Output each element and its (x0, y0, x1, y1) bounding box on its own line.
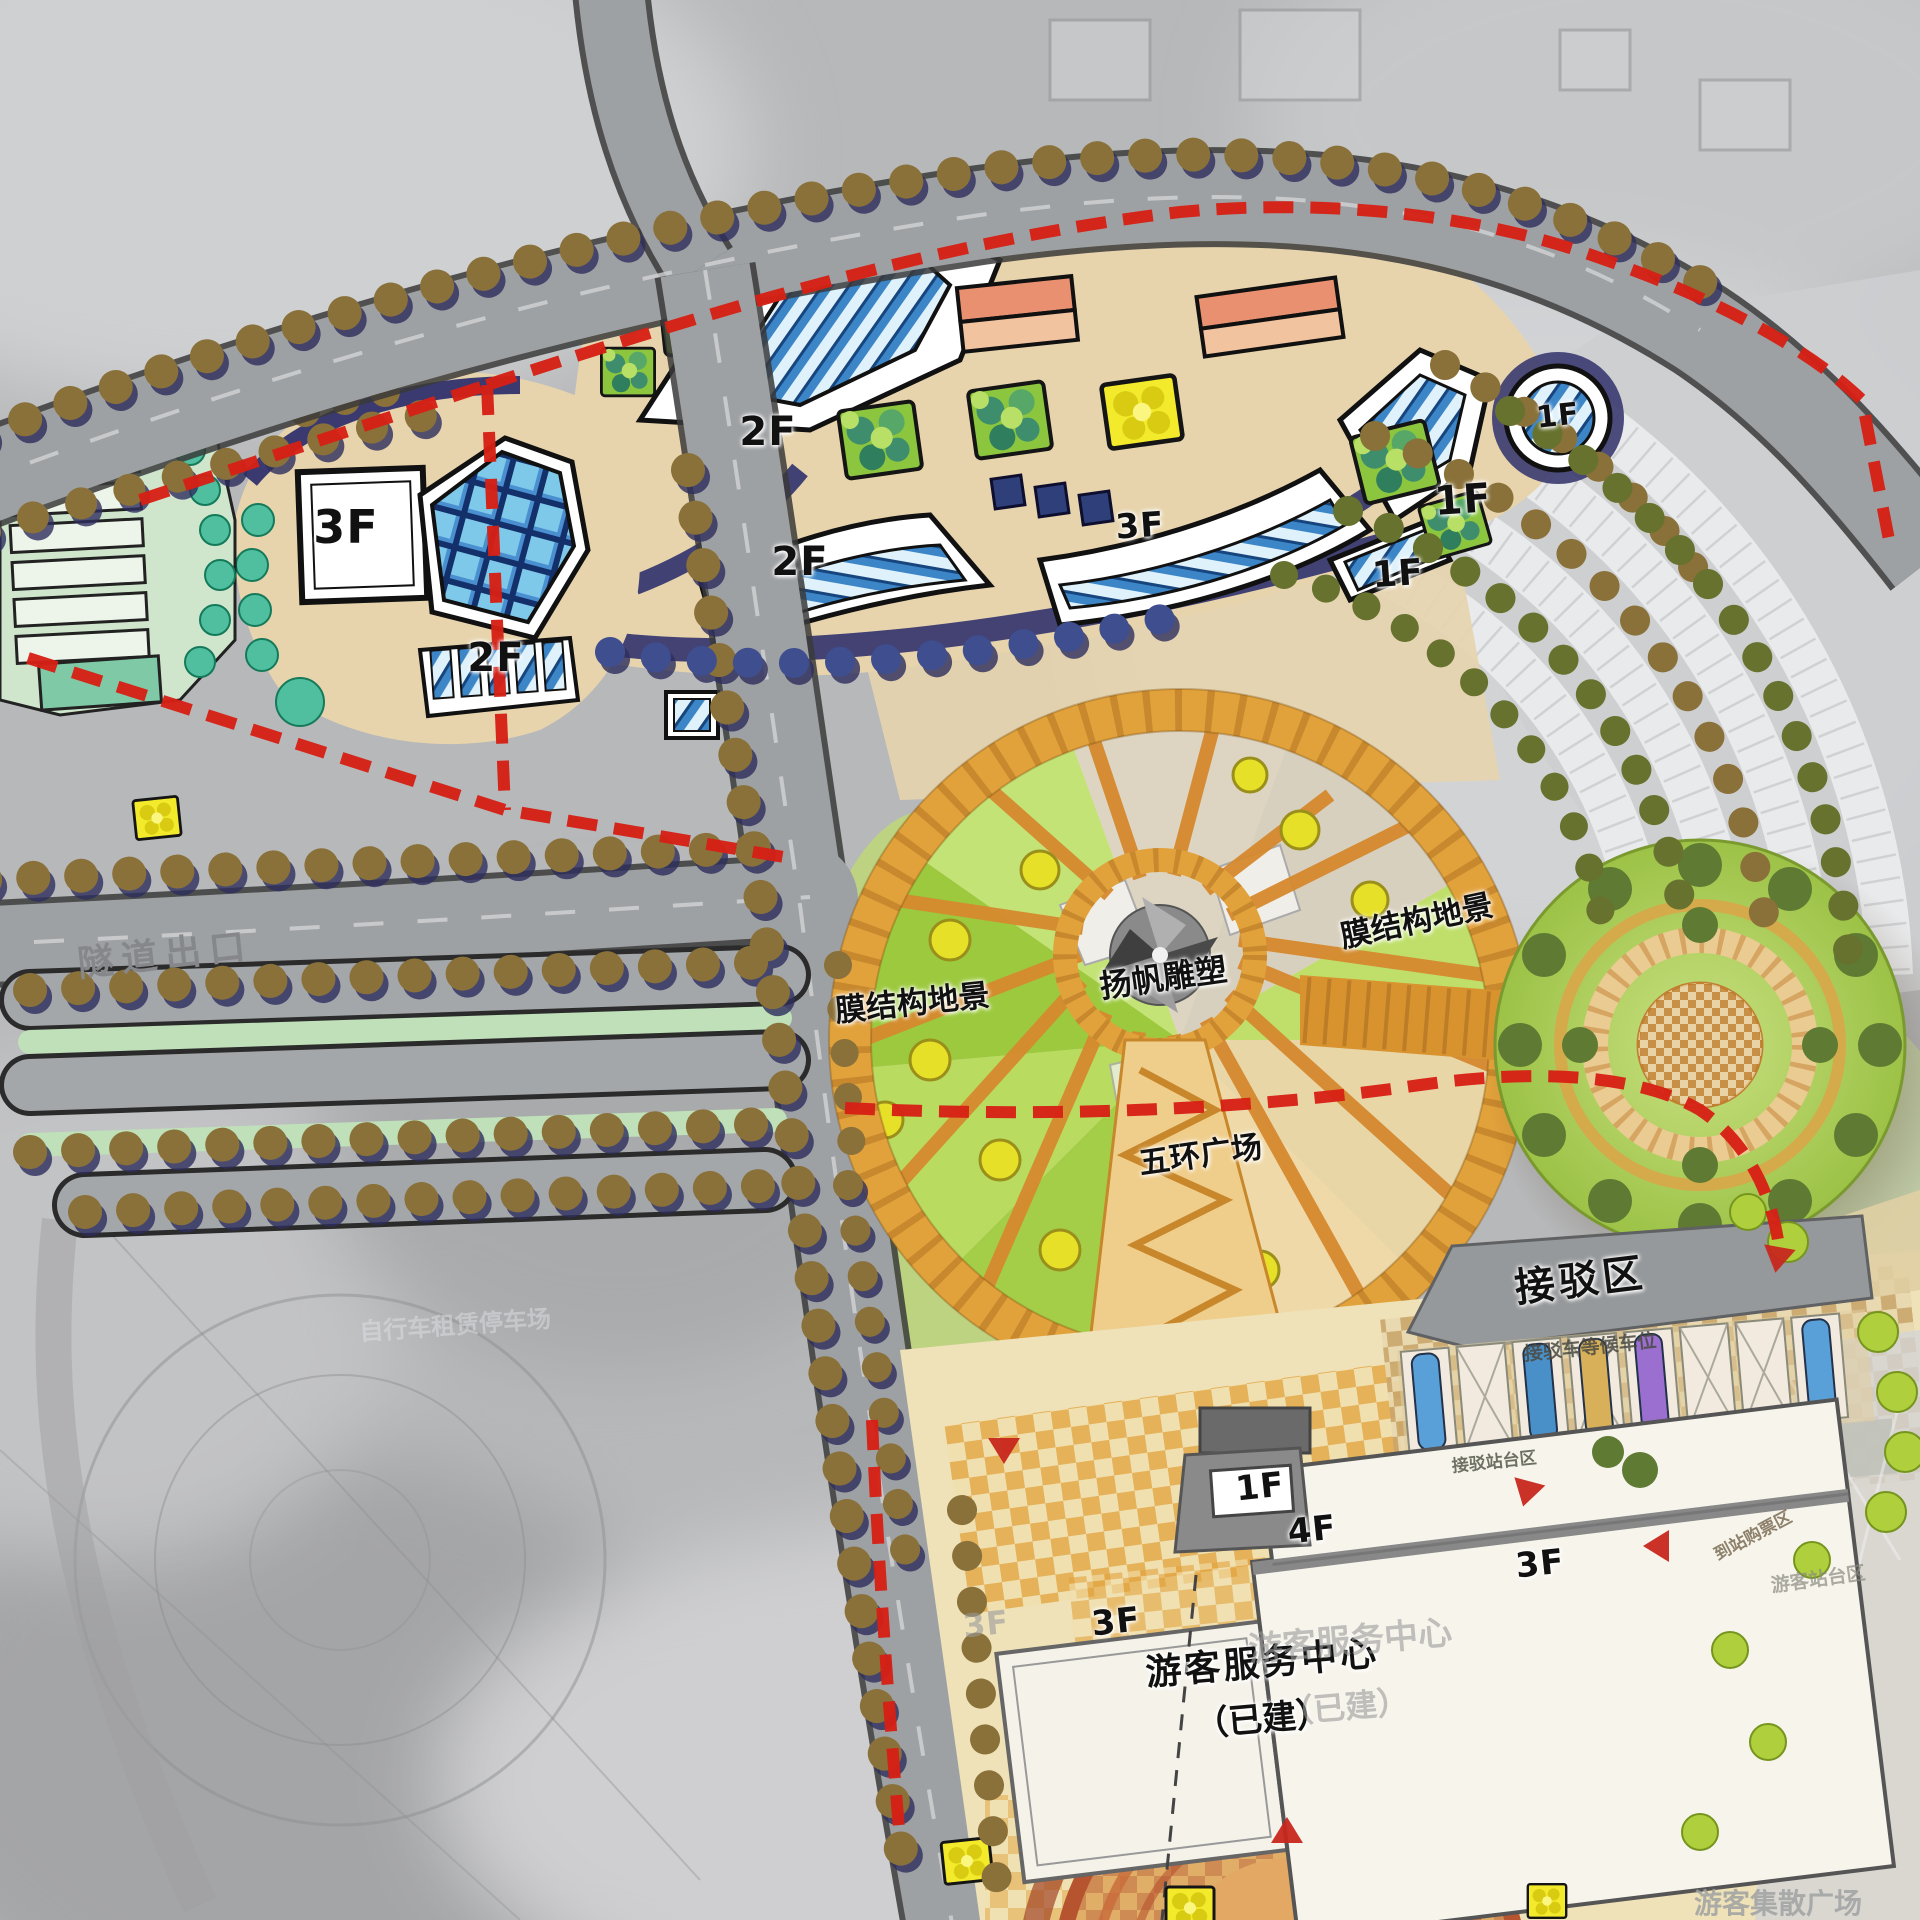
site-plan: 隧道出口 扬帆雕塑 膜结构地景 膜结构地景 五环广场 接驳区 接驳车等候车位 接… (0, 0, 1920, 1920)
site-plan-drawing (0, 0, 1920, 1920)
building-3f-left (298, 468, 427, 602)
building-salmon-1 (957, 276, 1078, 352)
left-parking-bars (30, 975, 780, 1205)
